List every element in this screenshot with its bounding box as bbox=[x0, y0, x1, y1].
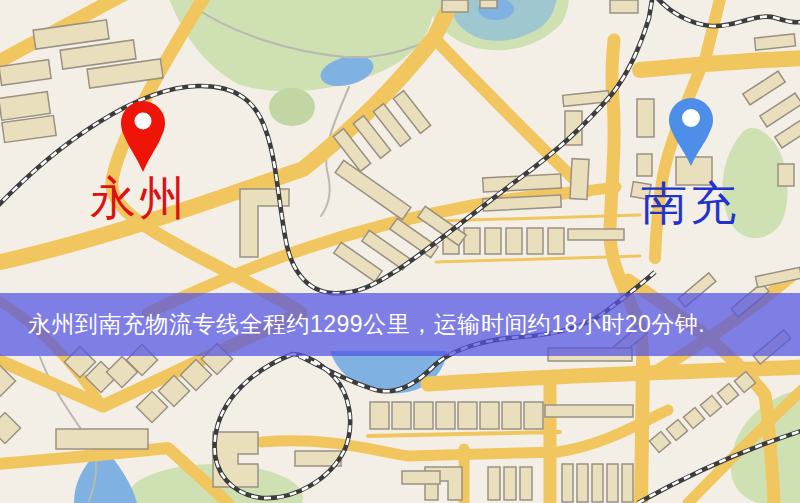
info-banner-text: 永州到南充物流专线全程约1299公里，运输时间约18小时20分钟. bbox=[0, 309, 705, 340]
park-grove bbox=[269, 88, 315, 126]
destination-label: 南充 bbox=[641, 181, 739, 227]
info-banner: 永州到南充物流专线全程约1299公里，运输时间约18小时20分钟. bbox=[0, 293, 800, 356]
origin-label: 永州 bbox=[90, 176, 188, 222]
map-canvas bbox=[0, 0, 800, 503]
route-map: 永州 南充 永州到南充物流专线全程约1299公里，运输时间约18小时20分钟. bbox=[0, 0, 800, 503]
